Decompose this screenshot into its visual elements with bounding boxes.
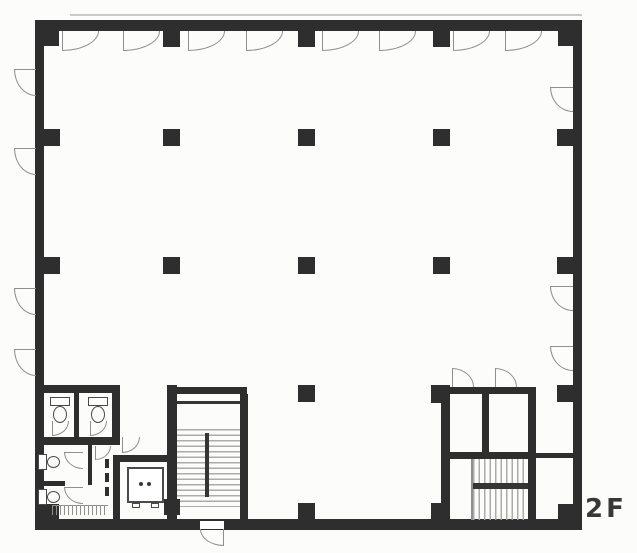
column-interior bbox=[163, 257, 180, 274]
elevator-door-jamb bbox=[132, 503, 140, 508]
window-arc-top bbox=[322, 31, 359, 51]
window-arc-left bbox=[14, 148, 36, 175]
toilet-wall-top bbox=[35, 385, 120, 393]
column-bottom-1 bbox=[298, 503, 315, 519]
rear-stair-landing-bar bbox=[473, 483, 528, 489]
column-top-2 bbox=[298, 31, 315, 47]
window-arc-left bbox=[14, 69, 36, 96]
rear-stair-treads bbox=[473, 459, 528, 520]
partition-dash bbox=[105, 487, 109, 496]
stair-landing-edge bbox=[177, 401, 240, 404]
toilet-partition bbox=[88, 445, 92, 485]
wc-fixture-tank bbox=[38, 454, 47, 470]
column-core-sw bbox=[431, 503, 450, 520]
toilet-wall-right bbox=[112, 385, 120, 445]
wc-fixture-tank bbox=[38, 489, 47, 505]
window-arc-top bbox=[62, 31, 99, 51]
column-interior bbox=[433, 129, 450, 146]
elevator-dot bbox=[147, 482, 151, 486]
parapet-line bbox=[70, 14, 582, 16]
exit-door-arc bbox=[200, 529, 224, 546]
wc-fixture-bowl bbox=[47, 491, 60, 503]
column-interior bbox=[433, 257, 450, 274]
window-arc-top bbox=[379, 31, 416, 51]
window-arc-top bbox=[505, 31, 542, 51]
core-wall-mid bbox=[441, 452, 536, 459]
window-arc-right bbox=[550, 346, 573, 371]
window-arc-top bbox=[453, 31, 490, 51]
window-arc-right bbox=[550, 286, 573, 311]
column-right-1 bbox=[557, 129, 573, 146]
column-right-2 bbox=[557, 257, 573, 274]
core-wall-top bbox=[437, 387, 536, 394]
elevator-car bbox=[127, 467, 164, 503]
column-interior bbox=[298, 385, 315, 402]
corridor-wall bbox=[536, 453, 573, 458]
column-interior bbox=[298, 257, 315, 274]
window-arc-top bbox=[123, 31, 160, 51]
toilet-wall-mid bbox=[35, 437, 120, 445]
stair-wall-right bbox=[240, 394, 248, 530]
stall-door-arc bbox=[90, 421, 107, 436]
window-arc-left bbox=[14, 349, 36, 376]
column-right-3 bbox=[557, 385, 573, 402]
floor-plan bbox=[0, 0, 637, 553]
elevator-wall-top bbox=[113, 455, 167, 462]
stair-center-rail bbox=[205, 433, 209, 497]
wc-divider bbox=[35, 481, 65, 486]
column-stair-sw bbox=[164, 499, 180, 515]
wc-door-arc bbox=[64, 452, 83, 469]
column-left-1 bbox=[44, 129, 60, 146]
column-top-1 bbox=[163, 31, 180, 47]
column-left-2 bbox=[44, 257, 60, 274]
core-door-arc bbox=[495, 368, 517, 387]
wc-fixture-bowl bbox=[47, 456, 60, 468]
window-arc-top bbox=[188, 31, 225, 51]
stall-door-arc bbox=[52, 421, 69, 436]
toilet-stall-divider bbox=[74, 393, 79, 437]
wall-right bbox=[573, 20, 582, 530]
wc-door-arc bbox=[64, 487, 83, 504]
column-corner-ne bbox=[558, 31, 573, 46]
column-top-3 bbox=[433, 31, 450, 47]
column-interior bbox=[163, 129, 180, 146]
core-door-arc bbox=[452, 368, 474, 387]
column-corner-nw bbox=[44, 31, 59, 46]
column-corner-se bbox=[558, 504, 573, 519]
floor-plan-scan: 2F bbox=[0, 0, 637, 553]
window-arc-top bbox=[246, 31, 283, 51]
floor-label: 2F bbox=[585, 494, 627, 524]
stair-wall-top bbox=[177, 387, 247, 394]
partition-dash bbox=[105, 473, 109, 482]
window-arc-left bbox=[14, 288, 36, 315]
exit-door-opening bbox=[200, 521, 224, 529]
toilet-tank bbox=[50, 397, 70, 406]
toilet-lobby-door bbox=[95, 446, 111, 460]
elevator-dot bbox=[139, 482, 143, 486]
rear-stair-edge bbox=[471, 459, 473, 520]
window-arc-right bbox=[550, 87, 573, 112]
toilet-tank bbox=[88, 397, 108, 406]
elevator-lobby-door bbox=[122, 437, 140, 453]
sink-counter bbox=[52, 505, 108, 515]
partition-dash bbox=[105, 459, 109, 468]
elevator-wall-left bbox=[113, 455, 120, 530]
elevator-door-jamb bbox=[151, 503, 159, 508]
core-room-divider bbox=[482, 394, 489, 452]
wall-top bbox=[35, 20, 582, 31]
column-interior bbox=[298, 129, 315, 146]
